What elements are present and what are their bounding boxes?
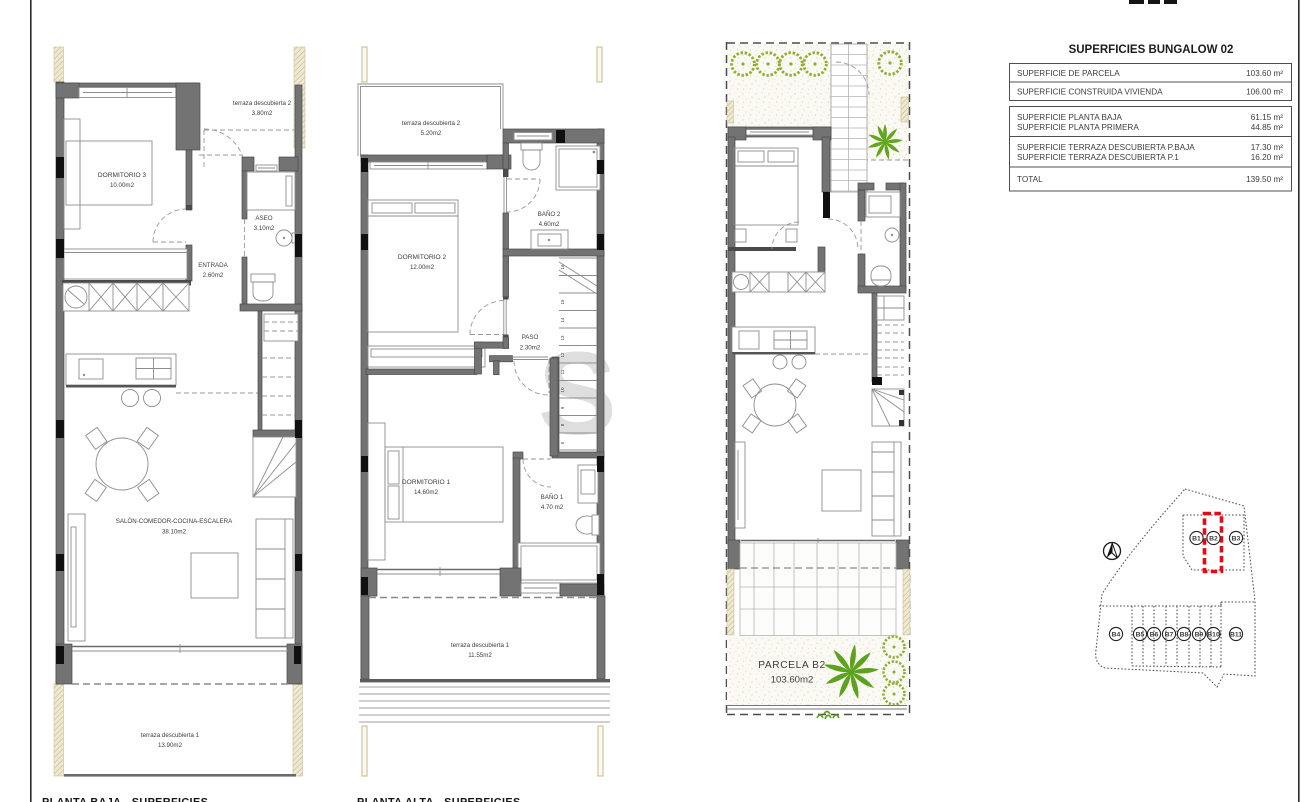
svg-text:SUPERFICIES BUNGALOW 02: SUPERFICIES BUNGALOW 02 [1069, 44, 1234, 56]
svg-text:B5: B5 [1136, 632, 1145, 639]
svg-text:terraza descubierta 2: terraza descubierta 2 [233, 100, 292, 107]
svg-text:2.60m2: 2.60m2 [203, 272, 224, 279]
svg-text:BAÑO 2: BAÑO 2 [538, 211, 561, 218]
svg-text:17.30 m²: 17.30 m² [1251, 143, 1284, 152]
svg-text:PLANTA ALTA - SUPERFICIES: PLANTA ALTA - SUPERFICIES [357, 797, 521, 802]
svg-text:ASEO: ASEO [255, 215, 272, 222]
svg-text:DORMITORIO 3: DORMITORIO 3 [98, 172, 147, 179]
svg-text:B10: B10 [1207, 632, 1220, 639]
svg-text:SUPERFICIE PLANTA PRIMERA: SUPERFICIE PLANTA PRIMERA [1017, 123, 1139, 132]
svg-text:103.60 m²: 103.60 m² [1246, 69, 1283, 78]
svg-text:3.80m2: 3.80m2 [252, 110, 273, 117]
svg-text:14: 14 [560, 317, 565, 323]
svg-text:11: 11 [560, 369, 565, 374]
svg-text:PASO: PASO [522, 334, 539, 341]
svg-text:B9: B9 [1195, 632, 1204, 639]
svg-text:ENTRADA: ENTRADA [198, 262, 228, 269]
svg-text:16: 16 [560, 264, 565, 270]
svg-text:139.50 m²: 139.50 m² [1246, 175, 1283, 184]
svg-text:PARCELA B2: PARCELA B2 [758, 660, 826, 671]
svg-text:terraza descubierta 2: terraza descubierta 2 [402, 120, 461, 127]
svg-text:61.15 m²: 61.15 m² [1251, 113, 1284, 122]
svg-text:11.55m2: 11.55m2 [468, 652, 492, 659]
svg-text:4.60m2: 4.60m2 [539, 221, 560, 228]
svg-text:B1: B1 [1192, 536, 1201, 543]
svg-text:DORMITORIO 1: DORMITORIO 1 [402, 479, 451, 486]
svg-text:10: 10 [560, 387, 565, 393]
svg-text:B11: B11 [1230, 632, 1242, 639]
svg-text:SUPERFICIE DE PARCELA: SUPERFICIE DE PARCELA [1017, 69, 1120, 78]
svg-text:B6: B6 [1150, 632, 1159, 639]
svg-text:B3: B3 [1232, 536, 1241, 543]
svg-text:5.20m2: 5.20m2 [421, 130, 442, 137]
svg-text:PLANTA BAJA - SUPERFICIES: PLANTA BAJA - SUPERFICIES [42, 797, 208, 802]
svg-text:terraza descubierta 1: terraza descubierta 1 [451, 642, 510, 649]
svg-text:12.00m2: 12.00m2 [410, 264, 435, 271]
svg-text:TOTAL: TOTAL [1017, 175, 1043, 184]
svg-text:13.90m2: 13.90m2 [158, 742, 183, 749]
svg-text:B8: B8 [1180, 632, 1189, 639]
svg-text:16.20 m²: 16.20 m² [1251, 153, 1284, 162]
svg-text:38.10m2: 38.10m2 [162, 529, 187, 536]
svg-text:106.00 m²: 106.00 m² [1246, 88, 1283, 97]
svg-text:44.85 m²: 44.85 m² [1251, 123, 1284, 132]
svg-text:terraza descubierta 1: terraza descubierta 1 [141, 732, 200, 739]
svg-text:12: 12 [560, 352, 565, 358]
svg-text:SUPERFICIE TERRAZA DESCUBIERTA: SUPERFICIE TERRAZA DESCUBIERTA P.BAJA [1017, 143, 1195, 152]
svg-text:BAÑO 1: BAÑO 1 [541, 494, 564, 501]
svg-text:B7: B7 [1165, 632, 1174, 639]
svg-text:SUPERFICIE PLANTA BAJA: SUPERFICIE PLANTA BAJA [1017, 113, 1122, 122]
svg-text:13: 13 [560, 335, 565, 341]
svg-text:DORMITORIO 2: DORMITORIO 2 [398, 254, 447, 261]
svg-text:14.60m2: 14.60m2 [414, 489, 439, 496]
svg-text:SALÓN-COMEDOR-COCINA-ESCALERA: SALÓN-COMEDOR-COCINA-ESCALERA [116, 518, 233, 525]
svg-text:B2: B2 [1209, 536, 1218, 543]
svg-text:4.70 m2: 4.70 m2 [541, 504, 564, 511]
svg-text:B4: B4 [1112, 632, 1121, 639]
svg-text:3.10m2: 3.10m2 [254, 225, 275, 232]
svg-text:SUPERFICIE TERRAZA DESCUBIERTA: SUPERFICIE TERRAZA DESCUBIERTA P.1 [1017, 153, 1179, 162]
svg-text:2.30m2: 2.30m2 [520, 345, 541, 352]
svg-text:SUPERFICIE CONSTRUIDA VIVIENDA: SUPERFICIE CONSTRUIDA VIVIENDA [1017, 88, 1163, 97]
svg-text:103.60m2: 103.60m2 [771, 675, 814, 686]
svg-text:10.00m2: 10.00m2 [110, 182, 135, 189]
svg-text:15: 15 [560, 299, 565, 305]
